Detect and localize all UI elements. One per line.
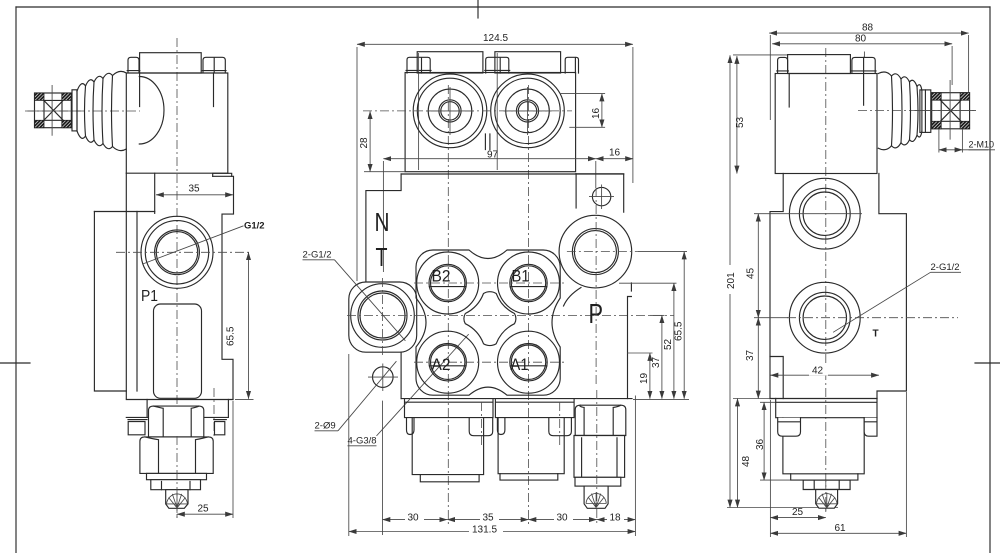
svg-text:37: 37	[651, 356, 662, 368]
svg-text:19: 19	[639, 372, 650, 384]
svg-text:B2: B2	[432, 266, 451, 285]
svg-text:45: 45	[746, 267, 757, 279]
svg-text:25: 25	[198, 504, 210, 515]
svg-text:48: 48	[741, 455, 752, 467]
svg-text:2-Ø9: 2-Ø9	[315, 421, 336, 432]
svg-text:30: 30	[408, 513, 420, 524]
svg-text:131.5: 131.5	[472, 525, 497, 536]
svg-text:A1: A1	[511, 355, 529, 374]
svg-text:35: 35	[483, 513, 495, 524]
svg-text:30: 30	[557, 513, 569, 524]
svg-text:35: 35	[189, 184, 201, 195]
svg-text:124.5: 124.5	[483, 33, 508, 44]
svg-text:P1: P1	[141, 288, 158, 305]
svg-text:61: 61	[835, 523, 847, 534]
svg-text:18: 18	[610, 513, 622, 524]
svg-text:52: 52	[663, 338, 674, 350]
svg-text:A2: A2	[432, 355, 451, 374]
svg-text:16: 16	[591, 107, 602, 119]
svg-text:36: 36	[755, 438, 766, 450]
svg-text:G1/2: G1/2	[244, 221, 265, 232]
svg-text:N: N	[375, 207, 390, 237]
svg-text:25: 25	[792, 507, 804, 518]
svg-text:16: 16	[609, 148, 621, 159]
svg-text:42: 42	[812, 366, 824, 377]
svg-text:B1: B1	[512, 266, 530, 285]
svg-text:28: 28	[359, 137, 370, 149]
svg-text:2-M10: 2-M10	[969, 140, 995, 150]
svg-text:2-G1/2: 2-G1/2	[931, 262, 960, 273]
svg-text:53: 53	[735, 116, 746, 128]
svg-text:65.5: 65.5	[674, 321, 685, 341]
svg-text:80: 80	[855, 34, 867, 45]
svg-text:T: T	[873, 329, 879, 340]
svg-text:201: 201	[726, 272, 737, 289]
svg-text:37: 37	[745, 349, 756, 361]
svg-text:65.5: 65.5	[226, 326, 237, 346]
svg-text:97: 97	[487, 149, 499, 160]
svg-text:T: T	[376, 242, 388, 272]
svg-text:88: 88	[862, 23, 874, 34]
svg-text:2-G1/2: 2-G1/2	[303, 250, 332, 261]
svg-text:4-G3/8: 4-G3/8	[348, 436, 377, 447]
